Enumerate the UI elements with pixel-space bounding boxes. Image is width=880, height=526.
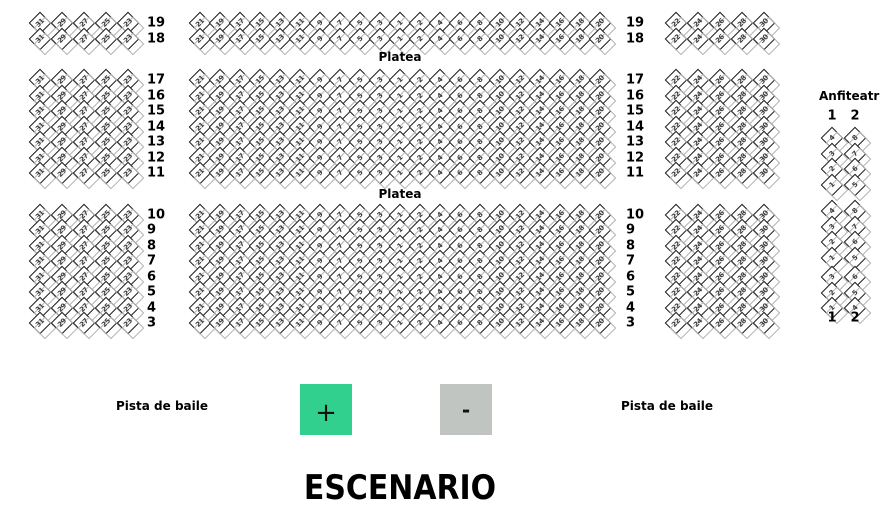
seat-number: 9 — [316, 76, 324, 84]
seat-number: 6 — [456, 288, 464, 296]
seat-number: 12 — [514, 317, 525, 328]
anfiteatro-column-label: 2 — [850, 110, 859, 123]
seat-number: 7 — [336, 319, 344, 327]
row-label: 6 — [626, 270, 635, 283]
seat-number: 20 — [594, 33, 605, 44]
seat-number: 3 — [376, 319, 384, 327]
seat-number: 4 — [436, 19, 444, 27]
seat-number: 5 — [356, 169, 364, 177]
row-label: 12 — [147, 151, 165, 164]
row-label: 10 — [626, 208, 644, 221]
seat-number: 5 — [356, 241, 364, 249]
seat-number: 5 — [356, 107, 364, 115]
row-label: 3 — [147, 317, 156, 330]
seat-number: 2 — [416, 34, 424, 42]
seat-number: 2 — [416, 76, 424, 84]
seat-number: 3 — [828, 149, 836, 157]
seat-number: 26 — [714, 167, 725, 178]
seat-number: 3 — [376, 153, 384, 161]
seat-number: 8 — [476, 226, 484, 234]
seat-number: 26 — [714, 317, 725, 328]
seat-number: 5 — [851, 253, 859, 261]
seat-number: 12 — [514, 33, 525, 44]
seat-number: 6 — [456, 241, 464, 249]
seat-number: 5 — [356, 153, 364, 161]
seat-number: 6 — [851, 238, 859, 246]
seat-number: 8 — [476, 122, 484, 130]
seat-number: 6 — [456, 19, 464, 27]
seat-number: 3 — [376, 288, 384, 296]
seat-number: 8 — [476, 107, 484, 115]
row-label: 9 — [626, 224, 635, 237]
seat-number: 11 — [294, 167, 305, 178]
seat-number: 31 — [34, 33, 45, 44]
seat-number: 9 — [316, 138, 324, 146]
seat-number: 6 — [851, 165, 859, 173]
seat-number: 16 — [554, 317, 565, 328]
seat-number: 2 — [416, 169, 424, 177]
seat-number: 2 — [416, 91, 424, 99]
seat-number: 9 — [316, 272, 324, 280]
row-label: 18 — [626, 32, 644, 45]
seat-number: 7 — [336, 241, 344, 249]
seat-number: 23 — [122, 167, 133, 178]
seat-number: 5 — [356, 122, 364, 130]
seat-number: 1 — [828, 253, 836, 261]
seat-number: 6 — [456, 107, 464, 115]
seat-number: 1 — [396, 288, 404, 296]
anfiteatro-label: Anfiteatro — [819, 89, 880, 103]
row-label: 10 — [147, 208, 165, 221]
seat-number: 2 — [416, 210, 424, 218]
row-label: 13 — [147, 136, 165, 149]
seat-number: 19 — [214, 33, 225, 44]
seat-number: 3 — [376, 107, 384, 115]
row-label: 19 — [147, 17, 165, 30]
seat-number: 12 — [514, 167, 525, 178]
row-label: 7 — [147, 255, 156, 268]
seat-number: 3 — [376, 210, 384, 218]
seat-number: 2 — [416, 257, 424, 265]
seat-map: 3129272523211917151311975312468101214161… — [0, 0, 880, 526]
seat-number: 21 — [194, 33, 205, 44]
row-label: 12 — [626, 151, 644, 164]
seat-number: 26 — [714, 33, 725, 44]
seat-number: 18 — [574, 33, 585, 44]
row-label: 16 — [626, 89, 644, 102]
seat-number: 8 — [476, 138, 484, 146]
seat-number: 5 — [356, 319, 364, 327]
seat-number: 21 — [194, 317, 205, 328]
seat-number: 2 — [416, 122, 424, 130]
row-label: 6 — [147, 270, 156, 283]
seat-number: 14 — [534, 33, 545, 44]
seat-number: 1 — [396, 138, 404, 146]
seat-number: 9 — [316, 91, 324, 99]
seat-number: 6 — [456, 91, 464, 99]
seat-number: 4 — [436, 76, 444, 84]
seat-number: 6 — [456, 226, 464, 234]
seat-number: 6 — [456, 153, 464, 161]
seat-number: 3 — [376, 122, 384, 130]
seat-number: 3 — [376, 76, 384, 84]
row-label: 11 — [147, 167, 165, 180]
seat-number: 1 — [396, 122, 404, 130]
seat-number: 13 — [274, 317, 285, 328]
row-label: 4 — [147, 301, 156, 314]
seat-number: 17 — [234, 33, 245, 44]
seat-number: 5 — [356, 210, 364, 218]
seat-number: 4 — [436, 303, 444, 311]
seat-number: 3 — [376, 169, 384, 177]
row-label: 13 — [626, 136, 644, 149]
seat-number: 2 — [416, 19, 424, 27]
seat-number: 31 — [34, 317, 45, 328]
seat-number: 5 — [356, 138, 364, 146]
seat-number: 7 — [336, 272, 344, 280]
seat-number: 27 — [78, 167, 89, 178]
seat-number: 13 — [274, 33, 285, 44]
seat-number: 22 — [670, 33, 681, 44]
seat-number: 6 — [456, 122, 464, 130]
anfiteatro-column-label: 2 — [850, 312, 859, 325]
seat-number: 23 — [122, 317, 133, 328]
seat-number: 1 — [396, 153, 404, 161]
seat-number: 19 — [214, 167, 225, 178]
seat-number: 3 — [376, 226, 384, 234]
seat-number: 4 — [436, 210, 444, 218]
seat-number: 6 — [456, 319, 464, 327]
seat-number: 4 — [436, 91, 444, 99]
seat-number: 7 — [336, 19, 344, 27]
seat-number: 7 — [336, 122, 344, 130]
seat-number: 3 — [376, 91, 384, 99]
seat-number: 4 — [436, 226, 444, 234]
seat-number: 24 — [692, 33, 703, 44]
row-label: 17 — [626, 74, 644, 87]
seat-number: 4 — [828, 134, 836, 142]
seat-number: 8 — [476, 34, 484, 42]
seat-number: 5 — [356, 226, 364, 234]
seat-number: 3 — [376, 138, 384, 146]
seat-number: 7 — [336, 138, 344, 146]
seat-number: 1 — [396, 226, 404, 234]
seat-number: 29 — [56, 167, 67, 178]
seat-number: 1 — [396, 107, 404, 115]
seat-number: 1 — [396, 257, 404, 265]
seat-number: 7 — [851, 222, 859, 230]
seat-number: 25 — [100, 167, 111, 178]
seat-number: 2 — [416, 241, 424, 249]
seat-number: 4 — [436, 122, 444, 130]
seat-number: 30 — [758, 317, 769, 328]
seat-number: 9 — [316, 241, 324, 249]
seat-number: 2 — [416, 319, 424, 327]
seat-number: 4 — [436, 138, 444, 146]
seat-number: 4 — [828, 207, 836, 215]
seat-number: 2 — [416, 303, 424, 311]
seat-number: 6 — [456, 169, 464, 177]
row-label: 8 — [147, 239, 156, 252]
anfiteatro-column-label: 1 — [827, 110, 836, 123]
seat-number: 3 — [376, 272, 384, 280]
seat-number: 31 — [34, 167, 45, 178]
seat-number: 5 — [356, 19, 364, 27]
seat-number: 28 — [736, 317, 747, 328]
seat-number: 5 — [356, 257, 364, 265]
seat-number: 2 — [416, 107, 424, 115]
seat-number: 7 — [336, 91, 344, 99]
seat-number: 5 — [356, 272, 364, 280]
row-label: 14 — [626, 120, 644, 133]
seat-number: 6 — [456, 272, 464, 280]
seat-number: 9 — [316, 319, 324, 327]
seat-number: 9 — [316, 169, 324, 177]
row-label: 16 — [147, 89, 165, 102]
seat-number: 10 — [494, 33, 505, 44]
seat-number: 14 — [534, 167, 545, 178]
seat-number: 25 — [100, 317, 111, 328]
seat-number: 3 — [376, 19, 384, 27]
row-label: 4 — [626, 301, 635, 314]
seat-number: 6 — [456, 303, 464, 311]
seat-number: 18 — [574, 317, 585, 328]
seat-number: 7 — [336, 303, 344, 311]
seat-number: 5 — [356, 288, 364, 296]
row-label: 17 — [147, 74, 165, 87]
seat-number: 28 — [736, 33, 747, 44]
seat-number: 8 — [476, 76, 484, 84]
row-label: 5 — [147, 286, 156, 299]
seat-number: 7 — [336, 210, 344, 218]
seat-number: 8 — [476, 91, 484, 99]
seat-number: 8 — [476, 303, 484, 311]
seat-number: 4 — [436, 257, 444, 265]
seat-number: 10 — [494, 317, 505, 328]
seat-number: 4 — [436, 107, 444, 115]
seat-number: 1 — [396, 169, 404, 177]
seat-number: 7 — [336, 153, 344, 161]
seat-number: 23 — [122, 33, 133, 44]
seat-number: 2 — [828, 165, 836, 173]
seat-number: 8 — [476, 319, 484, 327]
seat-number: 21 — [194, 167, 205, 178]
row-label: 7 — [626, 255, 635, 268]
zoom-out-button[interactable]: - — [440, 384, 492, 435]
seat-number: 1 — [396, 272, 404, 280]
seat-number: 1 — [396, 303, 404, 311]
seat-number: 2 — [416, 288, 424, 296]
seat-number: 29 — [56, 317, 67, 328]
seat-number: 6 — [456, 34, 464, 42]
seat-number: 19 — [214, 317, 225, 328]
row-label: 3 — [626, 317, 635, 330]
seat-number: 22 — [670, 167, 681, 178]
seat-number: 9 — [316, 257, 324, 265]
seat-number: 8 — [476, 19, 484, 27]
row-label: 15 — [626, 105, 644, 118]
seat-number: 4 — [436, 34, 444, 42]
seat-number: 7 — [336, 226, 344, 234]
seat-number: 9 — [316, 34, 324, 42]
seat-number: 4 — [436, 241, 444, 249]
seat-number: 1 — [396, 91, 404, 99]
seat-number: 5 — [356, 303, 364, 311]
anfiteatro-column-label: 1 — [827, 312, 836, 325]
seat-number: 8 — [476, 288, 484, 296]
seat-number: 18 — [574, 167, 585, 178]
seat-number: 8 — [851, 134, 859, 142]
seat-number: 9 — [316, 122, 324, 130]
seat-number: 1 — [396, 210, 404, 218]
seat-number: 4 — [436, 153, 444, 161]
seat-number: 6 — [851, 273, 859, 281]
seat-number: 3 — [376, 257, 384, 265]
row-label: 15 — [147, 105, 165, 118]
seat-number: 2 — [828, 238, 836, 246]
seat-number: 10 — [494, 167, 505, 178]
seat-number: 1 — [396, 76, 404, 84]
seat-number: 1 — [396, 241, 404, 249]
row-label: 11 — [626, 167, 644, 180]
seat-number: 8 — [476, 272, 484, 280]
seat-number: 3 — [376, 241, 384, 249]
seat-number: 7 — [336, 76, 344, 84]
seat-number: 3 — [828, 273, 836, 281]
seat-number: 8 — [476, 169, 484, 177]
seat-number: 11 — [294, 33, 305, 44]
seat-number: 30 — [758, 33, 769, 44]
seat-number: 13 — [274, 167, 285, 178]
seat-number: 1 — [396, 34, 404, 42]
seat-number: 2 — [416, 153, 424, 161]
pista-de-baile-label-left: Pista de baile — [116, 399, 208, 413]
seat-number: 5 — [356, 76, 364, 84]
seat-number: 16 — [554, 33, 565, 44]
seat-number: 7 — [336, 257, 344, 265]
seat-number: 2 — [828, 288, 836, 296]
seat-number: 16 — [554, 167, 565, 178]
seat-number: 30 — [758, 167, 769, 178]
row-label: 8 — [626, 239, 635, 252]
seat-number: 9 — [316, 19, 324, 27]
seat-number: 3 — [376, 34, 384, 42]
zoom-in-button[interactable]: + — [300, 384, 352, 435]
seat-number: 3 — [828, 222, 836, 230]
seat-number: 1 — [396, 319, 404, 327]
seat-number: 9 — [316, 303, 324, 311]
seat-number: 2 — [416, 226, 424, 234]
seat-number: 24 — [692, 317, 703, 328]
seat-number: 8 — [476, 153, 484, 161]
pista-de-baile-label-right: Pista de baile — [621, 399, 713, 413]
seat-number: 25 — [100, 33, 111, 44]
platea-label-middle: Platea — [379, 187, 422, 201]
seat-number: 9 — [316, 226, 324, 234]
seat-number: 1 — [396, 19, 404, 27]
seat-number: 1 — [828, 180, 836, 188]
platea-label-top: Platea — [379, 50, 422, 64]
seat-number: 15 — [254, 317, 265, 328]
seat-number: 2 — [416, 272, 424, 280]
seat-number: 22 — [670, 317, 681, 328]
seat-number: 3 — [376, 303, 384, 311]
seat-number: 27 — [78, 33, 89, 44]
seat-number: 24 — [692, 167, 703, 178]
seat-number: 17 — [234, 317, 245, 328]
seat-number: 7 — [336, 107, 344, 115]
seat-number: 29 — [56, 33, 67, 44]
seat-number: 5 — [851, 180, 859, 188]
seat-number: 4 — [436, 272, 444, 280]
row-label: 19 — [626, 17, 644, 30]
seat-number: 7 — [336, 288, 344, 296]
seat-number: 6 — [456, 257, 464, 265]
seat-number: 11 — [294, 317, 305, 328]
seat-number: 15 — [254, 33, 265, 44]
seat-number: 27 — [78, 317, 89, 328]
stage-label: ESCENARIO — [304, 468, 496, 508]
seat-number: 7 — [336, 169, 344, 177]
seat-number: 20 — [594, 167, 605, 178]
seat-number: 9 — [316, 288, 324, 296]
seat-number: 6 — [456, 76, 464, 84]
seat-number: 4 — [436, 169, 444, 177]
seat-number: 9 — [316, 210, 324, 218]
seat-number: 4 — [436, 319, 444, 327]
seat-number: 8 — [851, 207, 859, 215]
seat-number: 20 — [594, 317, 605, 328]
seat-number: 7 — [851, 149, 859, 157]
seat-number: 2 — [416, 138, 424, 146]
seat-number: 7 — [336, 34, 344, 42]
seat-number: 17 — [234, 167, 245, 178]
seat-number: 28 — [736, 167, 747, 178]
row-label: 14 — [147, 120, 165, 133]
seat-number: 8 — [476, 210, 484, 218]
row-label: 18 — [147, 32, 165, 45]
seat-number: 15 — [254, 167, 265, 178]
seat-number: 14 — [534, 317, 545, 328]
seat-number: 8 — [476, 241, 484, 249]
seat-number: 5 — [356, 34, 364, 42]
row-label: 9 — [147, 224, 156, 237]
seat-number: 5 — [356, 91, 364, 99]
seat-number: 9 — [316, 107, 324, 115]
seat-number: 6 — [456, 210, 464, 218]
seat-number: 6 — [456, 138, 464, 146]
seat-number: 8 — [476, 257, 484, 265]
seat-number: 9 — [316, 153, 324, 161]
seat-number: 4 — [436, 288, 444, 296]
row-label: 5 — [626, 286, 635, 299]
seat-number: 5 — [851, 288, 859, 296]
